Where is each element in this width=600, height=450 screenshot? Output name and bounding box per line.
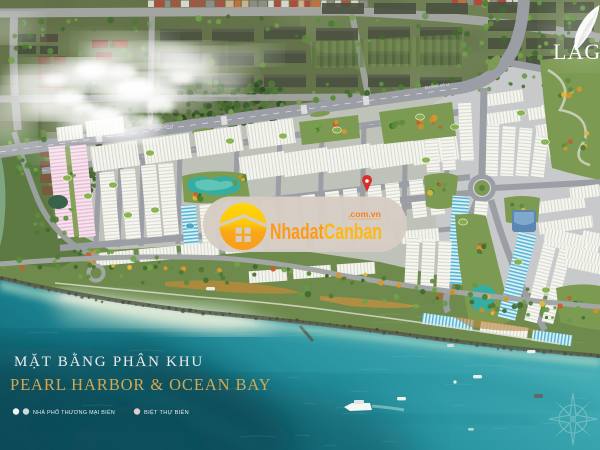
svg-text:BIỆT THỰ BIỂN: BIỆT THỰ BIỂN	[144, 408, 189, 416]
svg-text:NHÀ PHỐ THƯƠNG MẠI BIỂN: NHÀ PHỐ THƯƠNG MẠI BIỂN	[33, 409, 115, 416]
svg-text:NhadatCanban: NhadatCanban	[270, 219, 382, 244]
svg-text:.com.vn: .com.vn	[348, 209, 381, 219]
svg-text:PEARL HARBOR & OCEAN BAY: PEARL HARBOR & OCEAN BAY	[10, 375, 272, 394]
svg-text:LAGU: LAGU	[553, 39, 600, 64]
svg-text:MẶT BẰNG PHÂN KHU: MẶT BẰNG PHÂN KHU	[14, 353, 204, 370]
